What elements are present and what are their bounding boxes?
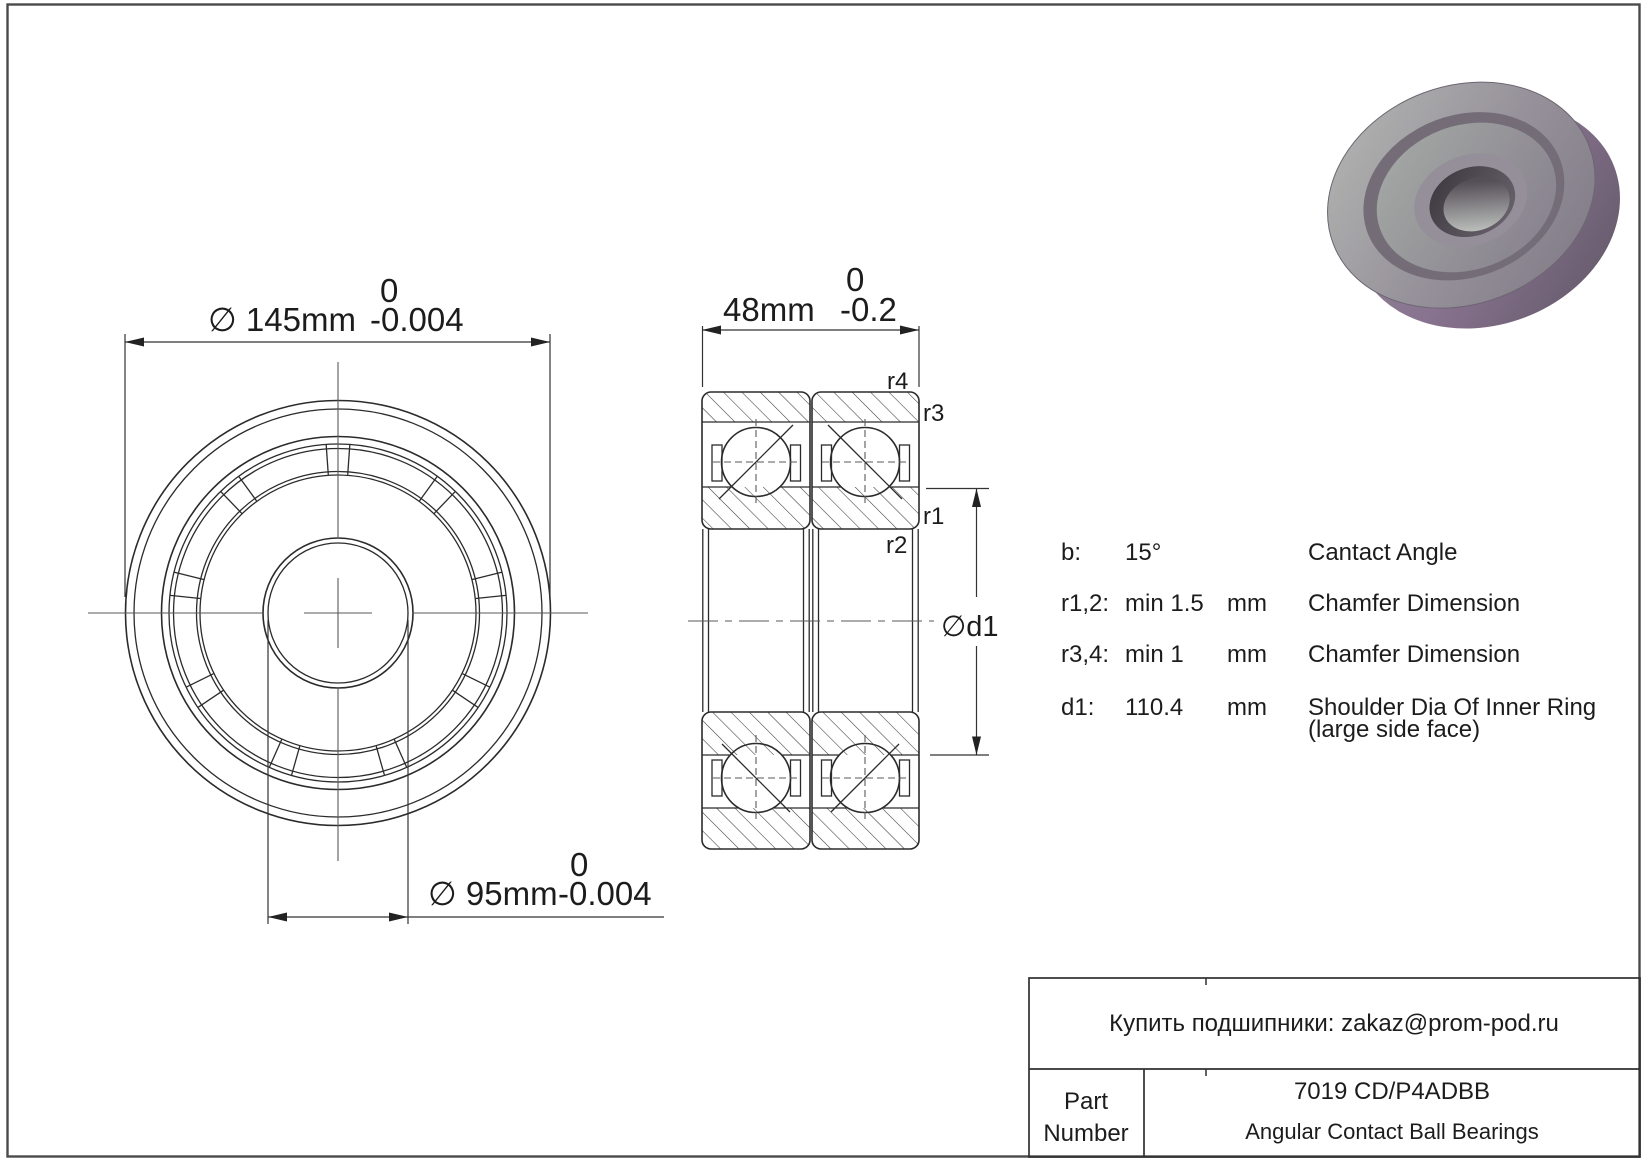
od-tol-upper: 0 <box>380 272 398 309</box>
arrow-left-icon <box>268 913 287 922</box>
spec-unit: mm <box>1227 641 1267 668</box>
arrow-left-icon <box>125 338 144 347</box>
spec-desc2: (large side face) <box>1308 716 1480 743</box>
bore-tol-upper: 0 <box>570 846 588 883</box>
contact-email-text: Купить подшипники: zakaz@prom-pod.ru <box>1109 1010 1559 1037</box>
spec-value: min 1 <box>1125 641 1184 668</box>
width-tol-upper: 0 <box>846 261 864 298</box>
r2-label: r2 <box>886 532 907 559</box>
bearing-3d-image <box>1294 39 1646 373</box>
arrow-right-icon <box>531 338 550 347</box>
spec-unit: mm <box>1227 590 1267 617</box>
od-dim-text: ∅ 145mm <box>208 301 356 338</box>
arrow-left-icon <box>702 326 721 335</box>
spec-desc: Cantact Angle <box>1308 539 1457 566</box>
spec-key: r1,2: <box>1061 590 1109 617</box>
part-label-line2: Number <box>1043 1120 1128 1147</box>
r1-label: r1 <box>923 503 944 530</box>
bore-dim-text: ∅ 95mm <box>428 875 558 912</box>
spec-desc: Chamfer Dimension <box>1308 590 1520 617</box>
front-view-centerlines <box>88 362 588 861</box>
width-dim-text: 48mm <box>723 291 815 328</box>
spec-value: 110.4 <box>1125 694 1183 721</box>
spec-key: b: <box>1061 539 1081 566</box>
spec-value: 15° <box>1125 539 1161 566</box>
front-view: ∅ 145mm -0.004 0 ∅ 95mm -0.004 0 <box>88 272 664 924</box>
spec-desc: Chamfer Dimension <box>1308 641 1520 668</box>
spec-table: b: 15° Cantact Angle r1,2: min 1.5 mm Ch… <box>1061 539 1596 743</box>
r4-label: r4 <box>887 368 908 395</box>
d1-dim-label: ∅d1 <box>941 611 999 643</box>
spec-key: r3,4: <box>1061 641 1109 668</box>
technical-drawing-canvas: ∅ 145mm -0.004 0 ∅ 95mm -0.004 0 <box>0 0 1646 1165</box>
part-type-text: Angular Contact Ball Bearings <box>1245 1119 1539 1144</box>
r3-label: r3 <box>923 400 944 427</box>
arrow-down-icon <box>972 737 981 756</box>
arrow-up-icon <box>972 489 981 508</box>
spec-value: min 1.5 <box>1125 590 1204 617</box>
spec-unit: mm <box>1227 694 1267 721</box>
part-label-line1: Part <box>1064 1088 1108 1115</box>
arrow-right-icon <box>389 913 408 922</box>
bearing-drawing-page: ∅ 145mm -0.004 0 ∅ 95mm -0.004 0 <box>0 0 1646 1165</box>
spec-key: d1: <box>1061 694 1094 721</box>
section-view: 48mm -0.2 0 ∅d1 r4 r3 r1 r2 <box>688 261 999 849</box>
title-block: Купить подшипники: zakaz@prom-pod.ru Par… <box>1029 978 1640 1157</box>
arrow-right-icon <box>900 326 919 335</box>
part-number-text: 7019 CD/P4ADBB <box>1294 1078 1490 1105</box>
